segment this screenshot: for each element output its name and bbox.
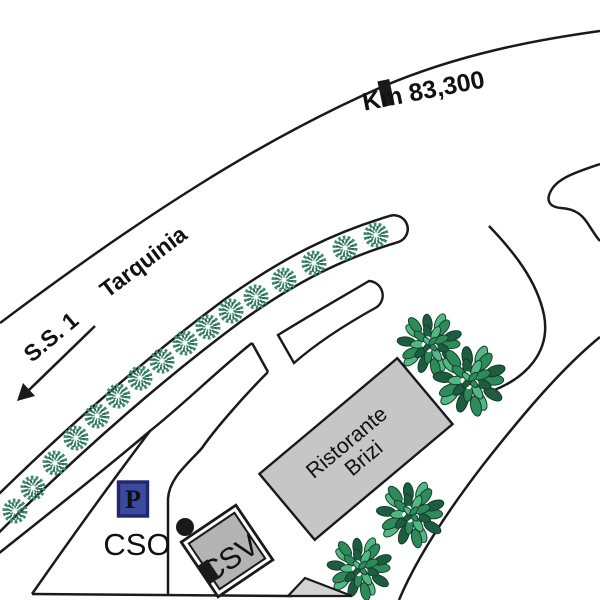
map-canvas: Ristorante Brizi CSV P CSO S.S. 1 Tarqui… (0, 0, 600, 600)
bottom-edge-line (32, 594, 292, 596)
bush (376, 481, 445, 549)
separator-island (278, 281, 383, 363)
km-label: Km 83,300 (360, 66, 487, 117)
csv-building: CSV (180, 505, 272, 597)
destination-label: Tarquinia (95, 220, 192, 302)
road-name-label: S.S. 1 (19, 307, 84, 367)
parking-letter: P (125, 485, 141, 514)
csv-corner-dot (176, 518, 194, 536)
cso-label: CSO (103, 527, 170, 562)
cso-parking-sign: P (119, 482, 148, 516)
separator-cut-edge (252, 343, 268, 372)
side-road-hook (549, 164, 600, 241)
